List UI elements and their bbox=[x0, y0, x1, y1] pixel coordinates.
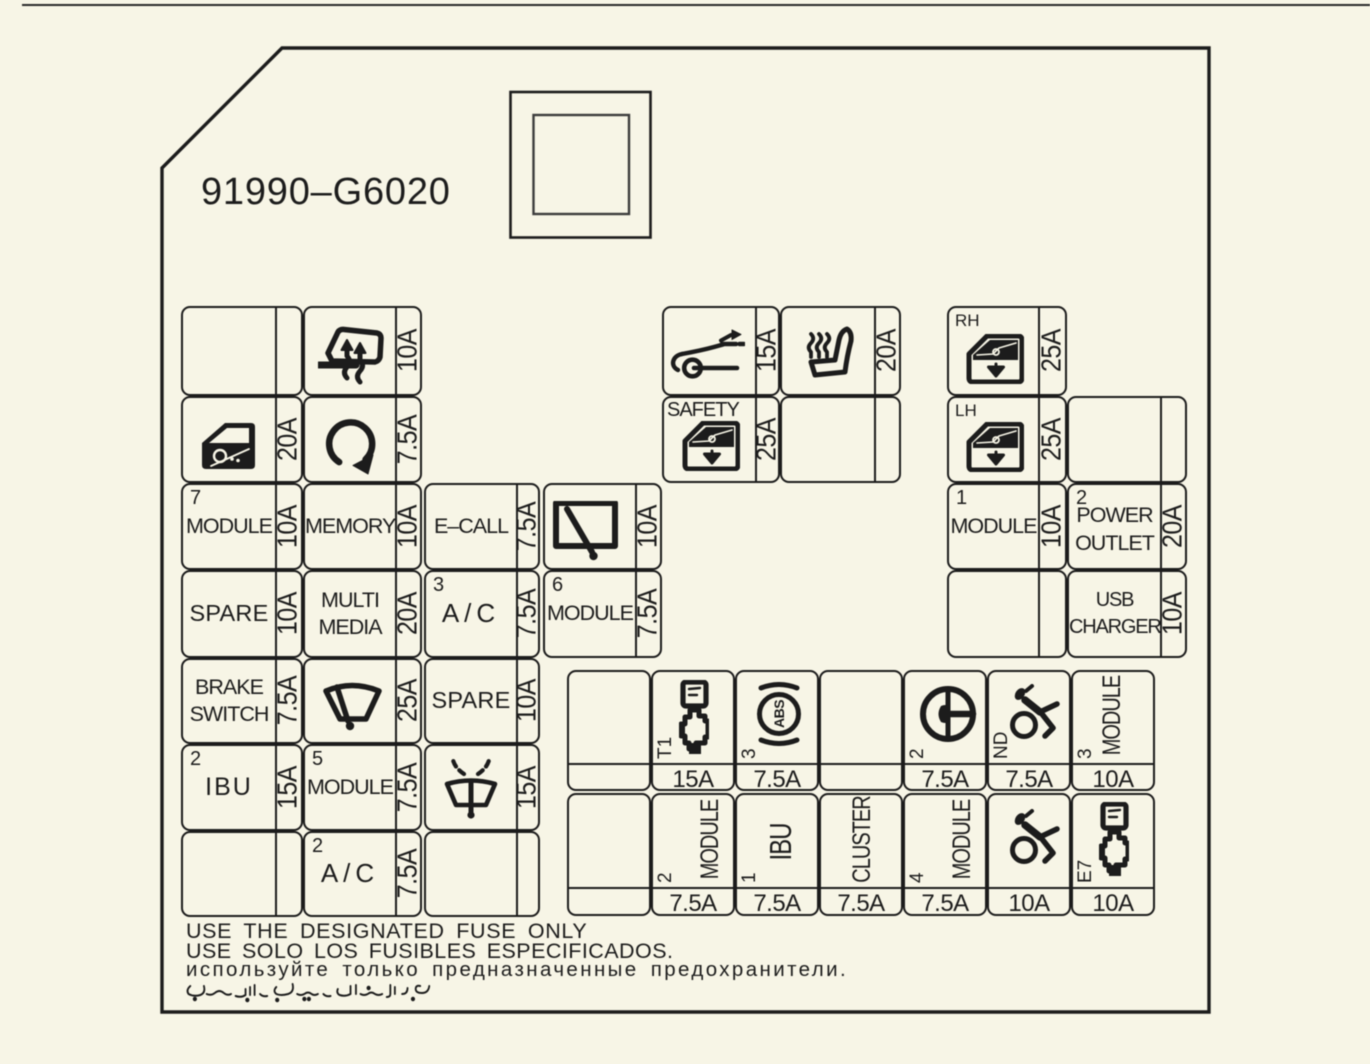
svg-text:ABS: ABS bbox=[771, 700, 787, 728]
